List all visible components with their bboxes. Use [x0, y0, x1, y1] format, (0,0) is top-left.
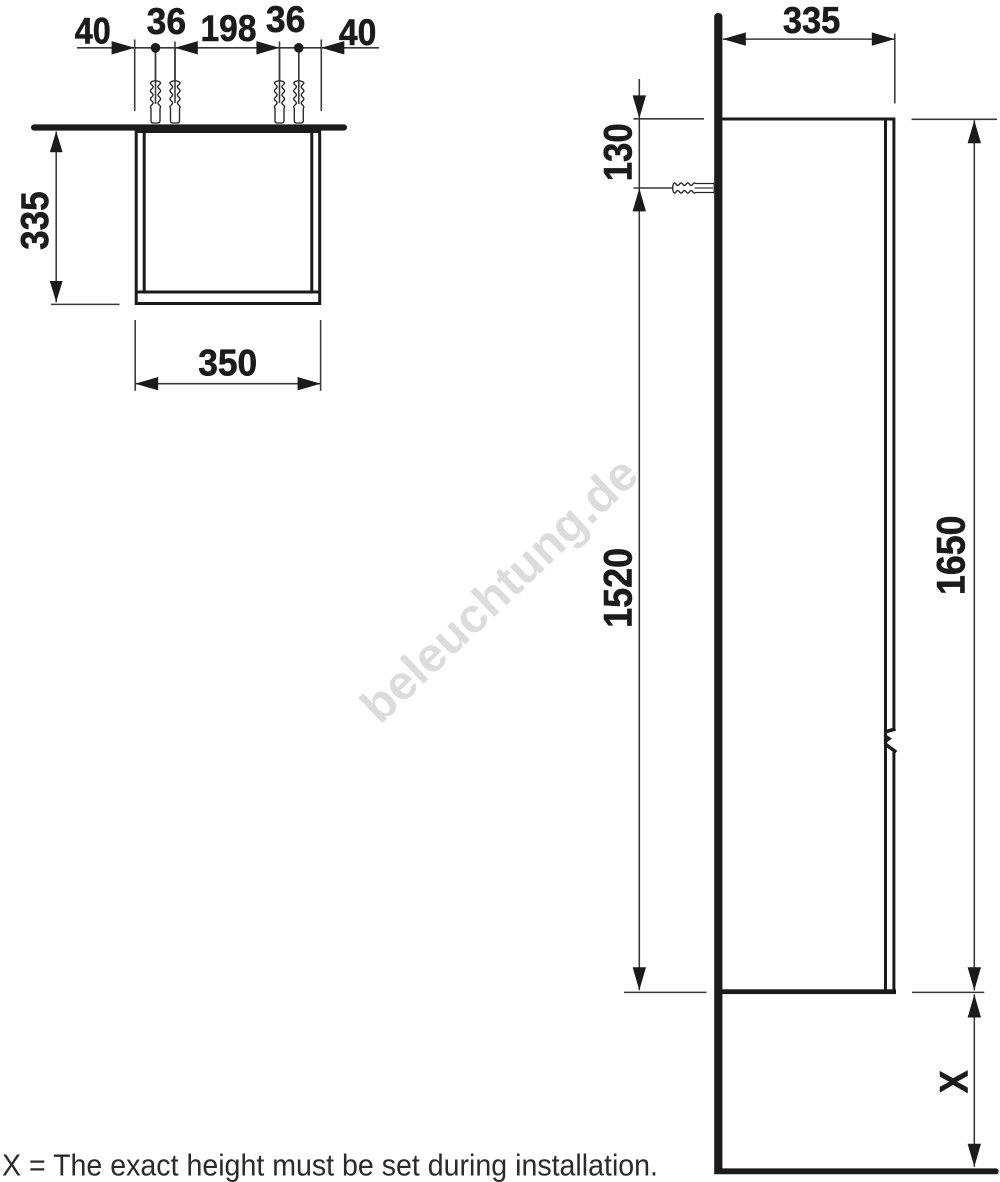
svg-text:1650: 1650 [929, 516, 973, 596]
svg-text:X = The exact height must be s: X = The exact height must be set during … [2, 1148, 658, 1182]
svg-text:335: 335 [14, 191, 57, 250]
svg-text:40: 40 [75, 10, 111, 51]
svg-text:36: 36 [147, 1, 187, 42]
svg-text:350: 350 [198, 342, 257, 383]
svg-text:1520: 1520 [597, 548, 641, 628]
svg-text:335: 335 [783, 0, 841, 41]
svg-text:130: 130 [597, 123, 641, 181]
svg-text:40: 40 [339, 12, 377, 53]
svg-text:X: X [932, 1070, 976, 1093]
svg-text:36: 36 [266, 0, 306, 40]
svg-text:198: 198 [201, 8, 257, 49]
